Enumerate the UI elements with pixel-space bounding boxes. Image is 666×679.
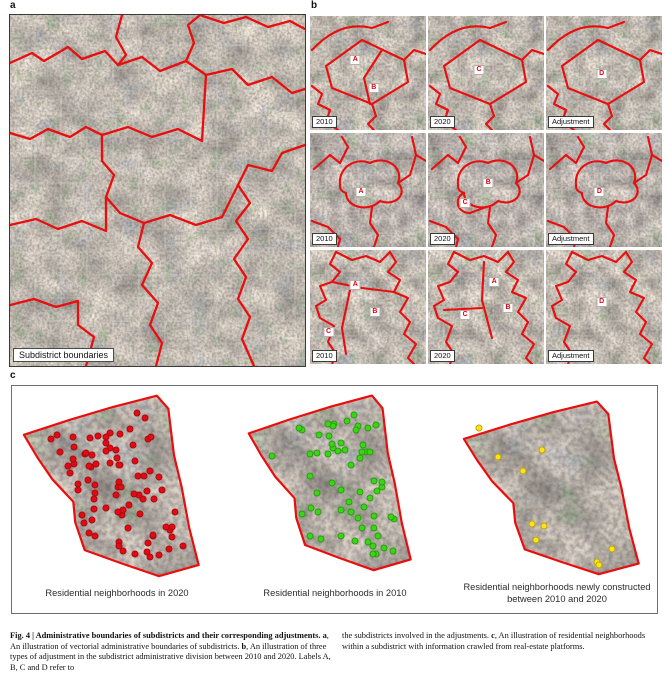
subdistrict-marker-a: A	[356, 187, 367, 197]
panel-c-box: Residential neighborhoods in 2020Residen…	[11, 385, 658, 614]
map-caption: Residential neighborhoods in 2010	[247, 588, 423, 600]
boundary-lines	[310, 133, 426, 247]
tile-year-tag: 2010	[312, 116, 337, 128]
neighborhood-dot	[337, 507, 344, 514]
neighborhood-dot	[269, 453, 276, 460]
b-tile-row3-adjustment: DAdjustment	[546, 250, 662, 364]
b-tile-row2-2020: BC2020	[428, 133, 544, 247]
tile-year-tag: 2020	[430, 350, 455, 362]
b-tile-row2-adjustment: DAdjustment	[546, 133, 662, 247]
panel-b-grid: AB2010C2020DAdjustmentA2010BC2020DAdjust…	[310, 16, 662, 364]
neighborhood-dot	[347, 508, 354, 515]
neighborhood-dot	[117, 431, 124, 438]
neighborhood-dot	[88, 452, 95, 459]
boundary-lines	[310, 250, 426, 364]
neighborhood-dot	[71, 443, 78, 450]
subdistrict-marker-b: B	[483, 178, 494, 188]
neighborhood-dot	[130, 442, 137, 449]
neighborhood-dot	[356, 455, 363, 462]
neighborhood-dot	[149, 531, 156, 538]
tile-year-tag: 2020	[430, 116, 455, 128]
neighborhood-dot	[70, 456, 77, 463]
tile-year-tag: 2020	[430, 233, 455, 245]
neighborhood-dot	[168, 534, 175, 541]
neighborhood-dot	[179, 543, 186, 550]
neighborhood-dot	[131, 490, 138, 497]
neighborhood-dot	[366, 494, 373, 501]
neighborhood-dot	[295, 425, 302, 432]
neighborhood-dot	[367, 449, 374, 456]
neighborhood-dot	[595, 562, 602, 569]
neighborhood-dot	[74, 481, 81, 488]
boundary-lines	[310, 16, 426, 130]
neighborhood-dot	[85, 463, 92, 470]
neighborhood-dot	[519, 467, 526, 474]
neighborhood-dot	[355, 515, 362, 522]
neighborhood-dot	[125, 525, 132, 532]
neighborhood-dot	[78, 511, 85, 518]
b-tile-row1-adjustment: DAdjustment	[546, 16, 662, 130]
b-tile-row3-2010: ABC2010	[310, 250, 426, 364]
neighborhood-dot	[142, 414, 149, 421]
neighborhood-dot	[356, 488, 363, 495]
panel-c-label: c	[10, 371, 16, 381]
neighborhood-dot	[388, 513, 395, 520]
neighborhood-dot	[91, 505, 98, 512]
caption-bold-segment: Fig. 4 | Administrative boundaries of su…	[10, 631, 323, 640]
neighborhood-dot	[56, 449, 63, 456]
neighborhood-dot	[326, 433, 333, 440]
neighborhood-dot	[147, 553, 154, 560]
neighborhood-dot	[324, 450, 331, 457]
subdistrict-marker-d: D	[596, 297, 607, 307]
neighborhood-dot	[364, 424, 371, 431]
neighborhood-dot	[353, 426, 360, 433]
neighborhood-dot	[95, 433, 102, 440]
neighborhood-dot	[74, 487, 81, 494]
subdistrict-marker-b: B	[369, 307, 380, 317]
boundary-lines	[428, 16, 544, 130]
neighborhood-dot	[53, 432, 60, 439]
neighborhood-dot	[609, 546, 616, 553]
neighborhood-dot	[343, 417, 350, 424]
neighborhood-dot	[370, 524, 377, 531]
neighborhood-dot	[70, 434, 77, 441]
neighborhood-dot	[93, 461, 100, 468]
neighborhood-dot	[347, 462, 354, 469]
neighborhood-dot	[145, 539, 152, 546]
neighborhood-dot	[358, 448, 365, 455]
boundary-lines	[428, 250, 544, 364]
neighborhood-dot	[81, 519, 88, 526]
neighborhood-dot	[351, 412, 358, 419]
neighborhood-dot	[148, 433, 155, 440]
neighborhood-dot	[165, 545, 172, 552]
neighborhood-dot	[538, 446, 545, 453]
c-map-2	[247, 392, 423, 572]
tile-year-tag: Adjustment	[548, 233, 594, 245]
subdistrict-marker-d: D	[596, 69, 607, 79]
neighborhood-dot	[158, 486, 165, 493]
subdistrict-marker-c: C	[474, 65, 485, 75]
neighborhood-dot	[88, 517, 95, 524]
neighborhood-dot	[127, 426, 134, 433]
neighborhood-dot	[389, 548, 396, 555]
neighborhood-dot	[540, 523, 547, 530]
neighborhood-dot	[146, 468, 153, 475]
subdistrict-marker-c: C	[323, 327, 334, 337]
neighborhood-dot	[120, 506, 127, 513]
map-caption: Residential neighborhoods newly construc…	[462, 582, 652, 605]
panel-b-label: b	[311, 1, 317, 11]
tile-year-tag: Adjustment	[548, 350, 594, 362]
tile-year-tag: 2010	[312, 233, 337, 245]
neighborhood-dot	[134, 473, 141, 480]
neighborhood-dot	[144, 487, 151, 494]
neighborhood-dot	[156, 552, 163, 559]
neighborhood-dot	[136, 510, 143, 517]
neighborhood-dot	[90, 496, 97, 503]
subdistrict-boundaries-badge: Subdistrict boundaries	[13, 348, 114, 362]
b-tile-row2-2010: A2010	[310, 133, 426, 247]
subdistrict-marker-c: C	[460, 310, 471, 320]
neighborhood-dot	[112, 446, 119, 453]
neighborhood-dot	[338, 486, 345, 493]
neighborhood-dots-layer	[22, 392, 212, 578]
neighborhood-dot	[338, 532, 345, 539]
neighborhood-dot	[317, 536, 324, 543]
b-tile-row1-2020: C2020	[428, 16, 544, 130]
neighborhood-dot	[307, 533, 314, 540]
neighborhood-dot	[335, 447, 342, 454]
neighborhood-dot	[338, 440, 345, 447]
neighborhood-dot	[381, 545, 388, 552]
neighborhood-dot	[85, 476, 92, 483]
panel-a-map: Subdistrict boundaries	[10, 15, 305, 366]
neighborhood-dot	[87, 434, 94, 441]
neighborhood-dot	[113, 492, 120, 499]
neighborhood-dot	[374, 532, 381, 539]
neighborhood-dot	[371, 512, 378, 519]
neighborhood-dot	[345, 499, 352, 506]
neighborhood-dot	[329, 480, 336, 487]
neighborhood-dot	[116, 478, 123, 485]
neighborhood-dot	[352, 537, 359, 544]
subdistrict-marker-a: A	[350, 280, 361, 290]
neighborhood-dot	[172, 508, 179, 515]
neighborhood-dot	[314, 508, 321, 515]
neighborhood-dot	[342, 446, 349, 453]
neighborhood-dot	[168, 523, 175, 530]
neighborhood-dot	[369, 550, 376, 557]
neighborhood-dot	[131, 550, 138, 557]
neighborhood-dot	[495, 453, 502, 460]
neighborhood-dot	[132, 458, 139, 465]
neighborhood-dot	[529, 521, 536, 528]
neighborhood-dot	[103, 448, 110, 455]
b-tile-row1-2010: AB2010	[310, 16, 426, 130]
neighborhood-dot	[371, 477, 378, 484]
neighborhood-dot	[307, 451, 314, 458]
tile-year-tag: 2010	[312, 350, 337, 362]
neighborhood-dot	[116, 542, 123, 549]
neighborhood-dot	[65, 463, 72, 470]
c-map-3	[462, 398, 652, 576]
subdistrict-marker-b: B	[368, 83, 379, 93]
neighborhood-dot	[361, 504, 368, 511]
subdistrict-marker-c: C	[460, 198, 471, 208]
neighborhood-dot	[92, 489, 99, 496]
neighborhood-dot	[299, 510, 306, 517]
neighborhood-dot	[92, 532, 99, 539]
caption-column-right: the subdistricts involved in the adjustm…	[342, 631, 658, 673]
subdistrict-marker-a: A	[350, 55, 361, 65]
neighborhood-dot	[533, 537, 540, 544]
c-map-1	[22, 392, 212, 578]
figure-caption: Fig. 4 | Administrative boundaries of su…	[10, 631, 660, 673]
boundary-lines	[428, 133, 544, 247]
neighborhood-dot	[115, 461, 122, 468]
neighborhood-dot	[359, 525, 366, 532]
neighborhood-dot	[314, 449, 321, 456]
subdistrict-marker-b: B	[503, 303, 514, 313]
neighborhood-dot	[365, 538, 372, 545]
subdistrict-marker-d: D	[594, 187, 605, 197]
neighborhood-dot	[102, 434, 109, 441]
neighborhood-dot	[107, 460, 114, 467]
neighborhood-dot	[134, 409, 141, 416]
neighborhood-dot	[155, 474, 162, 481]
neighborhood-dot	[359, 441, 366, 448]
neighborhood-dot	[316, 432, 323, 439]
subdistrict-marker-a: A	[489, 277, 500, 287]
neighborhood-dot	[378, 479, 385, 486]
neighborhood-dot	[102, 505, 109, 512]
caption-text-segment: the subdistricts involved in the adjustm…	[342, 631, 491, 640]
neighborhood-dot	[306, 472, 313, 479]
b-tile-row3-2020: ABC2020	[428, 250, 544, 364]
neighborhood-dot	[126, 501, 133, 508]
panel-a-label: a	[10, 1, 16, 11]
neighborhood-dot	[476, 425, 483, 432]
neighborhood-dot	[308, 504, 315, 511]
figure-page: a Subdistrict boundaries b AB2010C2020DA…	[0, 0, 666, 679]
neighborhood-dot	[329, 441, 336, 448]
neighborhood-dots-layer	[462, 398, 652, 576]
tile-year-tag: Adjustment	[548, 116, 594, 128]
caption-column-left: Fig. 4 | Administrative boundaries of su…	[10, 631, 332, 673]
neighborhood-dot	[150, 495, 157, 502]
neighborhood-dot	[66, 469, 73, 476]
neighborhood-dot	[314, 490, 321, 497]
panel-a-boundary-lines	[10, 15, 305, 366]
map-caption: Residential neighborhoods in 2020	[22, 588, 212, 600]
neighborhood-dots-layer	[247, 392, 423, 572]
neighborhood-dot	[325, 421, 332, 428]
neighborhood-dot	[372, 422, 379, 429]
neighborhood-dot	[91, 481, 98, 488]
